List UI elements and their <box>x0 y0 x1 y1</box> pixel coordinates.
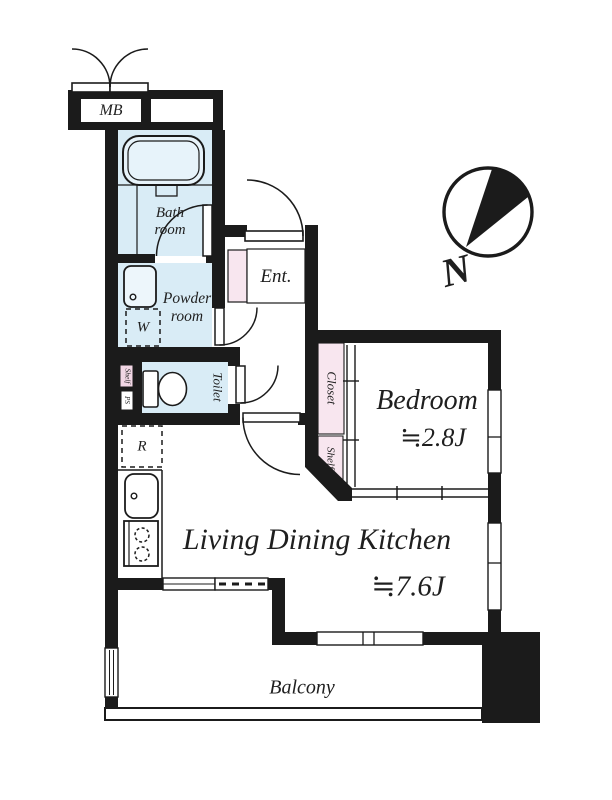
room-label-bath: Bath room <box>154 205 185 240</box>
closet-sliding-door <box>343 345 359 487</box>
closet-shelf-label: Shelf <box>324 447 337 469</box>
wall-powder-toilet-band <box>105 347 240 362</box>
ldk-door-arc <box>243 418 300 475</box>
wall-corner-column <box>482 632 540 723</box>
powder-label-line2: room <box>163 308 211 326</box>
room-label-balcony: Balcony <box>269 677 335 700</box>
room-label-closet: Closet <box>324 371 339 404</box>
kitchen-sink <box>125 474 158 518</box>
mb-double-door <box>72 49 148 92</box>
bedroom-right-window <box>488 390 501 473</box>
balcony-railing <box>105 708 482 720</box>
wall-bedroom-top <box>305 330 501 343</box>
bath-door-leaf <box>203 205 212 256</box>
room-label-ldk: Living Dining Kitchen <box>183 523 451 558</box>
bathtub <box>123 136 204 185</box>
bedroom-area-label: ≒2.8J <box>400 423 466 453</box>
wall-entrance-right <box>305 225 318 343</box>
compass <box>444 168 532 256</box>
room-label-powder: Powder room <box>163 290 211 326</box>
mb-door-leaf-left <box>72 83 110 92</box>
wall-bedroom-right-upper <box>488 330 501 390</box>
powder-door-arc <box>220 308 258 346</box>
toilet-door-arc <box>241 366 279 404</box>
wall-toilet-bottom-band <box>105 413 240 425</box>
vanity-sink <box>124 266 156 307</box>
entrance-door-leaf <box>245 231 303 241</box>
toilet-tank <box>143 371 158 407</box>
bath-label-line1: Bath <box>154 205 185 222</box>
ldk-area-label: ≒7.6J <box>371 570 444 603</box>
room-label-entrance: Ent. <box>260 266 291 288</box>
powder-label-line1: Powder <box>163 290 211 308</box>
wall-balcony-top-right <box>423 632 488 645</box>
entrance-shelf-strip <box>228 250 247 302</box>
wall-balcony-top-left <box>272 632 317 645</box>
mb-door-arc-left <box>72 49 110 87</box>
wall-right-mid <box>488 473 501 523</box>
entrance-door-arc <box>247 180 303 236</box>
bath-label-line2: room <box>154 222 185 239</box>
balcony-partition-panel <box>105 648 118 697</box>
ldk-door-leaf <box>243 413 300 422</box>
wall-bath-right <box>212 130 225 237</box>
wall-entrance-top <box>212 225 247 237</box>
meter-box-label: MB <box>99 102 122 120</box>
washer-label: W <box>137 319 150 336</box>
room-label-bedroom: Bedroom <box>376 385 478 417</box>
pipe-space-label: PS <box>123 396 131 404</box>
toilet-door-leaf <box>236 366 245 403</box>
wall-balcony-left <box>105 590 118 648</box>
toilet-shelf-label: Shelf <box>122 369 131 384</box>
ldk-right-window <box>488 523 501 610</box>
mb-door-arc-right <box>110 49 148 87</box>
meter-box-2 <box>151 99 213 122</box>
wall-bath-powder-left <box>105 254 155 263</box>
room-label-toilet: Toilet <box>210 372 225 401</box>
wall-closet-left <box>305 343 318 455</box>
bedroom-ldk-sliding-partition <box>352 486 488 500</box>
powder-door-leaf <box>215 308 224 345</box>
wall-ldk-right-lower <box>488 610 501 635</box>
wall-powder-right <box>212 237 225 308</box>
mb-door-leaf-right <box>110 83 148 92</box>
fridge-label: R <box>137 438 146 455</box>
balcony-sliding-window <box>317 632 423 645</box>
toilet-bowl <box>159 373 187 406</box>
floor-plan: MB Bath room Powder room W Toilet Shelf … <box>0 0 612 800</box>
wall-kitchen-bottom-left <box>105 578 163 590</box>
